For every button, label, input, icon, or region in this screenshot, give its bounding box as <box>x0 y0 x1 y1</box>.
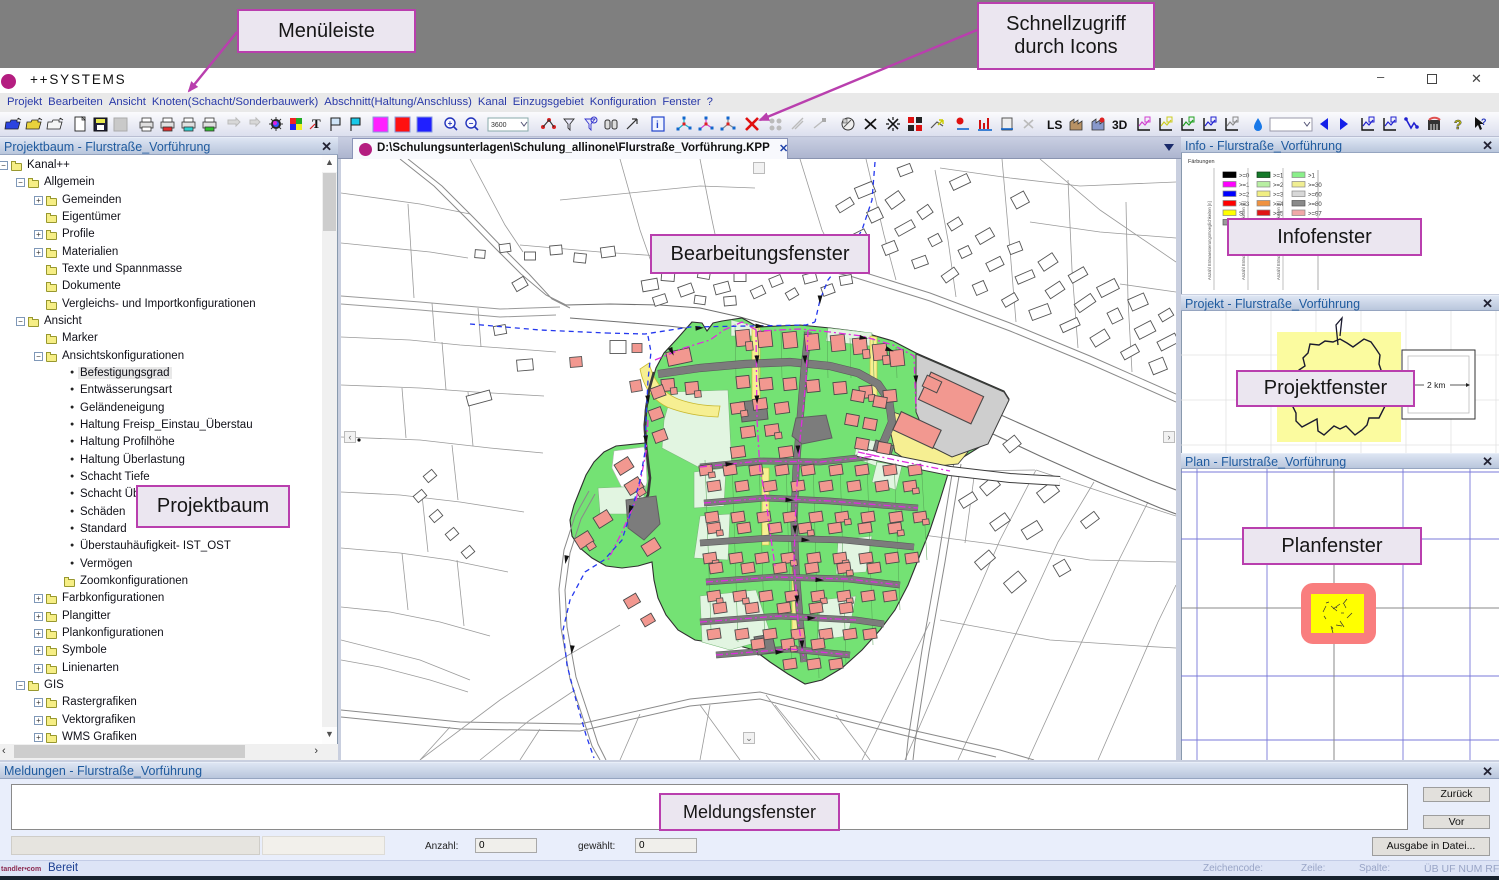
svg-text:3D: 3D <box>1112 118 1128 132</box>
svg-text:2 km: 2 km <box>1427 380 1445 390</box>
svg-text:3600: 3600 <box>491 122 507 129</box>
svg-text:i: i <box>656 120 659 131</box>
svg-text:?: ? <box>1454 117 1462 132</box>
svg-text:>=2: >=2 <box>1273 183 1284 189</box>
svg-text:+: + <box>448 119 453 128</box>
svg-text:>=80: >=80 <box>1308 202 1322 208</box>
svg-text:−: − <box>469 119 474 128</box>
svg-text:>=30: >=30 <box>1308 183 1322 189</box>
svg-text:T: T <box>312 116 321 131</box>
svg-text:>1: >1 <box>1308 174 1316 180</box>
svg-text:>=3: >=3 <box>1273 193 1284 199</box>
svg-text:>=60: >=60 <box>1308 193 1322 199</box>
svg-text:Färbungen: Färbungen <box>1188 159 1215 165</box>
svg-text:Anzahl Entwaesserungsmoeglichk: Anzahl Entwaesserungsmoeglichkeiten [n] <box>1207 201 1212 280</box>
svg-text:>=1: >=1 <box>1273 174 1284 180</box>
svg-text:?: ? <box>1481 117 1487 127</box>
svg-text:LS: LS <box>1047 118 1062 132</box>
svg-text:>=97: >=97 <box>1308 212 1322 218</box>
